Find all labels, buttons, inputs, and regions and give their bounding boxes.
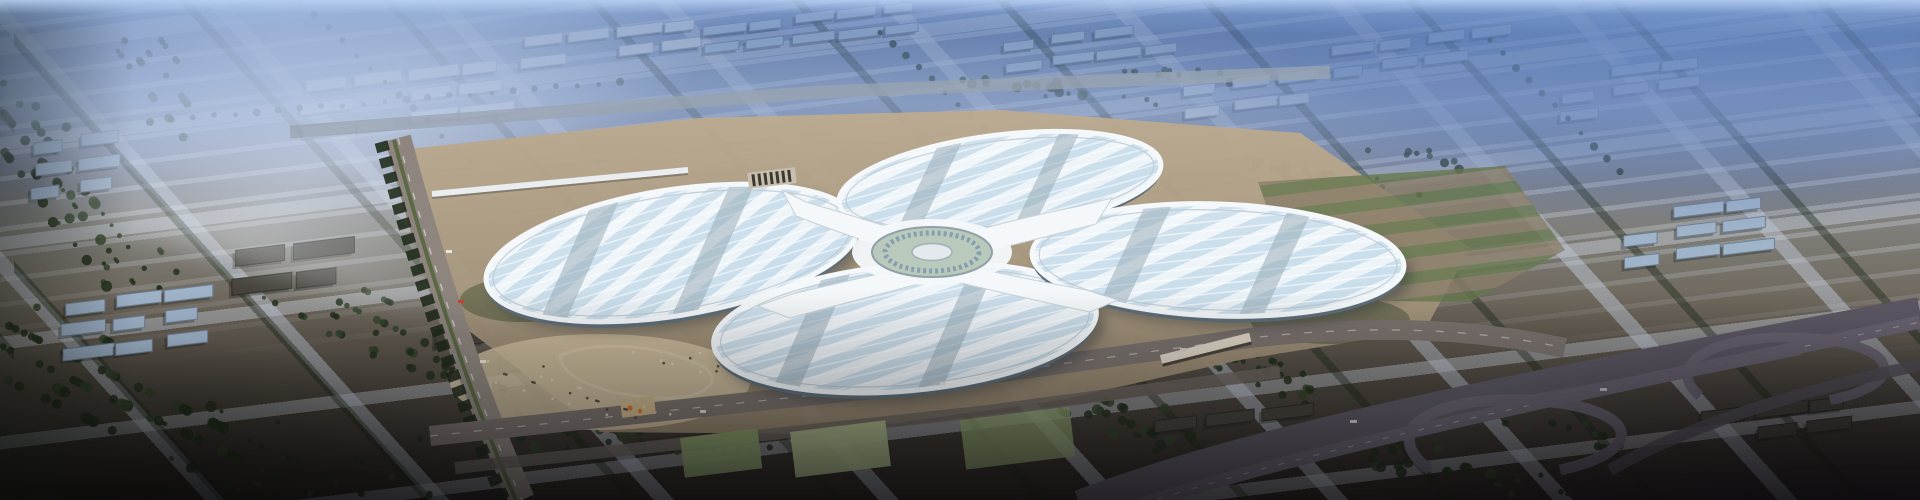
banner-image bbox=[0, 0, 1920, 500]
top-edge-glow bbox=[0, 0, 1920, 500]
